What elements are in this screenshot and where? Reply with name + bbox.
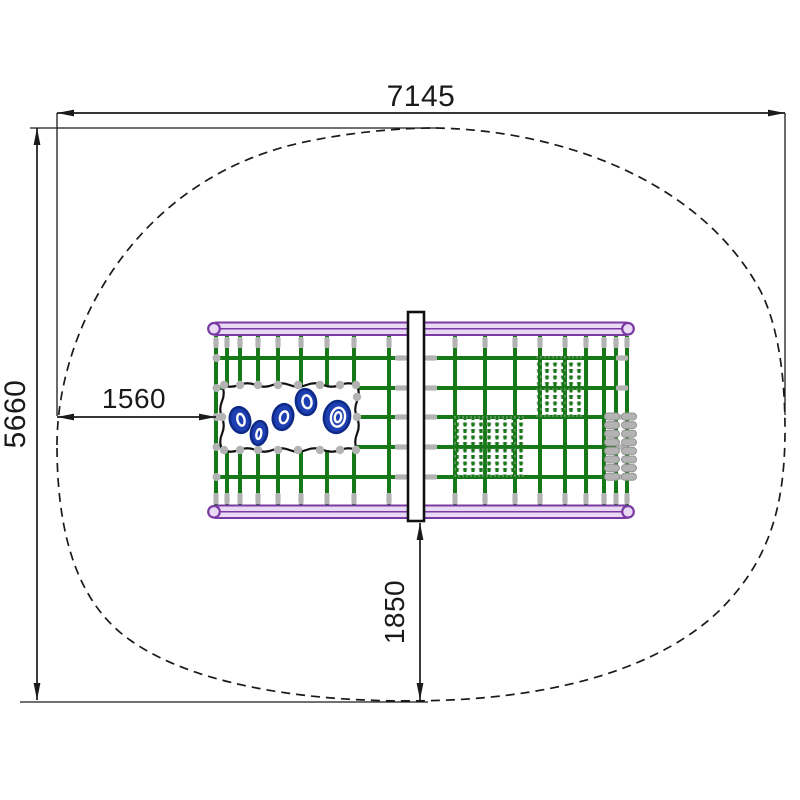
dim-label-total-depth: 5660 bbox=[0, 380, 32, 449]
arrowhead bbox=[417, 523, 424, 540]
rail-end-cap bbox=[208, 506, 220, 518]
rail-end-cap bbox=[208, 323, 220, 335]
plan-drawing: 7145 5660 1560 1850 bbox=[0, 0, 800, 800]
dim-label-left-offset: 1560 bbox=[102, 383, 166, 414]
dimension-left-offset: 1560 bbox=[57, 383, 216, 420]
dimension-bottom-offset: 1850 bbox=[379, 523, 423, 700]
rail-end-cap bbox=[622, 323, 634, 335]
dim-label-bottom-offset: 1850 bbox=[379, 580, 410, 644]
arrowhead bbox=[34, 128, 41, 145]
center-post bbox=[408, 312, 424, 521]
arrowhead bbox=[417, 683, 424, 700]
mat-opening bbox=[218, 381, 361, 454]
arrowhead bbox=[768, 110, 785, 117]
arrowhead bbox=[57, 110, 74, 117]
drawing-canvas: 7145 5660 1560 1850 bbox=[0, 0, 800, 800]
dim-label-total-width: 7145 bbox=[387, 80, 456, 113]
rail-end-cap bbox=[622, 506, 634, 518]
arrowhead bbox=[34, 683, 41, 700]
